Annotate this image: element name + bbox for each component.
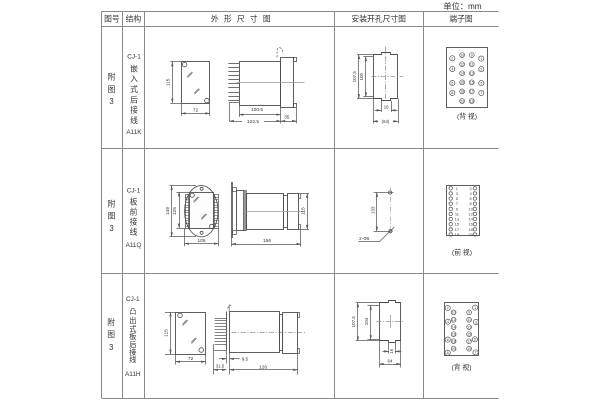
svg-text:CJ-1: CJ-1 [126,296,140,303]
svg-text:9: 9 [471,53,473,57]
svg-text:12: 12 [460,62,464,66]
svg-text:105: 105 [197,238,205,244]
svg-text:72: 72 [188,356,194,362]
svg-text:(背 视): (背 视) [451,362,471,371]
svg-text:35: 35 [284,114,290,120]
svg-text:图: 图 [108,85,116,94]
svg-text:3: 3 [480,67,482,71]
svg-text:附: 附 [108,72,116,82]
svg-text:16: 16 [389,348,394,353]
svg-text:(64): (64) [382,119,390,124]
svg-text:17: 17 [470,90,474,94]
svg-text:7: 7 [480,91,482,95]
svg-text:19: 19 [470,99,474,103]
svg-text:4: 4 [451,67,453,71]
svg-text:17: 17 [467,339,471,343]
svg-text:20: 20 [460,99,464,103]
svg-text:10: 10 [452,311,456,315]
svg-text:8: 8 [451,91,453,95]
svg-text:14: 14 [460,71,464,75]
svg-text:图号: 图号 [104,14,120,23]
svg-text:2: 2 [451,57,453,61]
svg-text:安装开孔尺寸图: 安装开孔尺寸图 [351,13,406,23]
svg-text:19: 19 [455,232,460,237]
svg-text:1: 1 [474,306,476,310]
svg-text:13: 13 [467,325,471,329]
svg-text:105: 105 [359,72,364,80]
svg-text:接: 接 [130,105,138,115]
svg-text:CJ-1: CJ-1 [127,54,141,61]
svg-text:115: 115 [164,329,170,337]
svg-text:图: 图 [107,330,115,339]
svg-text:1: 1 [480,57,482,61]
svg-text:20: 20 [468,232,473,237]
svg-text:线: 线 [130,227,138,237]
svg-text:前: 前 [130,207,138,217]
svg-text:16: 16 [384,105,389,110]
svg-text:14: 14 [452,325,456,329]
svg-text:122.5: 122.5 [247,119,259,125]
svg-text:3: 3 [109,224,113,233]
svg-text:8: 8 [447,351,449,355]
svg-text:附: 附 [107,317,115,327]
svg-text:A11H: A11H [125,371,141,378]
svg-text:凸: 凸 [129,307,136,316]
svg-text:15: 15 [470,81,474,85]
svg-text:20: 20 [452,347,456,351]
svg-text:18: 18 [460,90,464,94]
svg-text:107.5: 107.5 [352,71,357,83]
svg-text:19: 19 [467,347,471,351]
svg-text:4: 4 [447,320,449,324]
svg-text:10: 10 [460,53,464,57]
svg-text:6: 6 [447,338,449,342]
svg-text:A11Q: A11Q [126,242,142,249]
svg-text:2-Φ5: 2-Φ5 [359,236,370,241]
svg-text:104: 104 [364,317,369,325]
svg-text:115: 115 [165,78,171,86]
svg-text:13: 13 [470,71,474,75]
svg-text:2: 2 [447,306,449,310]
svg-text:线: 线 [129,355,136,364]
svg-text:板: 板 [130,197,138,207]
svg-text:嵌: 嵌 [130,65,138,74]
svg-text:9: 9 [468,311,470,315]
svg-text:(背 视): (背 视) [457,111,477,120]
svg-text:64: 64 [387,358,393,363]
svg-text:107.5: 107.5 [351,316,356,328]
svg-text:126: 126 [259,364,267,370]
svg-text:6: 6 [451,81,453,85]
svg-text:31.5: 31.5 [216,363,225,368]
svg-text:3: 3 [109,343,113,352]
svg-text:3: 3 [109,97,113,106]
svg-text:3: 3 [475,320,477,324]
svg-text:5: 5 [474,338,476,342]
svg-text:100.5: 100.5 [251,107,263,113]
svg-text:12: 12 [452,318,456,322]
svg-text:15: 15 [467,332,471,336]
svg-text:115: 115 [301,207,307,215]
svg-text:入: 入 [130,75,138,84]
svg-text:11: 11 [470,62,474,66]
svg-text:图: 图 [108,212,116,221]
svg-text:16: 16 [460,81,464,85]
svg-text:(前 视): (前 视) [452,247,472,256]
svg-text:后: 后 [130,95,138,105]
svg-text:156: 156 [263,238,271,244]
svg-text:CJ-1: CJ-1 [127,188,141,195]
svg-text:附: 附 [108,199,116,209]
svg-text:式: 式 [130,84,138,94]
svg-text:16: 16 [452,332,456,336]
svg-text:A11K: A11K [126,129,142,136]
svg-text:133: 133 [370,206,375,214]
svg-text:72: 72 [193,107,199,113]
svg-text:线: 线 [130,115,138,125]
svg-text:单位：mm: 单位：mm [443,1,481,11]
svg-text:9.5: 9.5 [242,357,249,362]
svg-text:外形尺寸图: 外形尺寸图 [211,13,276,23]
svg-text:125: 125 [172,207,178,215]
svg-text:接: 接 [130,217,138,227]
svg-text:18: 18 [452,339,456,343]
svg-text:结构: 结构 [126,13,142,23]
svg-text:端子图: 端子图 [449,13,473,23]
svg-text:5: 5 [480,81,482,85]
svg-text:7: 7 [475,351,477,355]
svg-text:149: 149 [165,207,171,215]
svg-text:11: 11 [467,318,471,322]
